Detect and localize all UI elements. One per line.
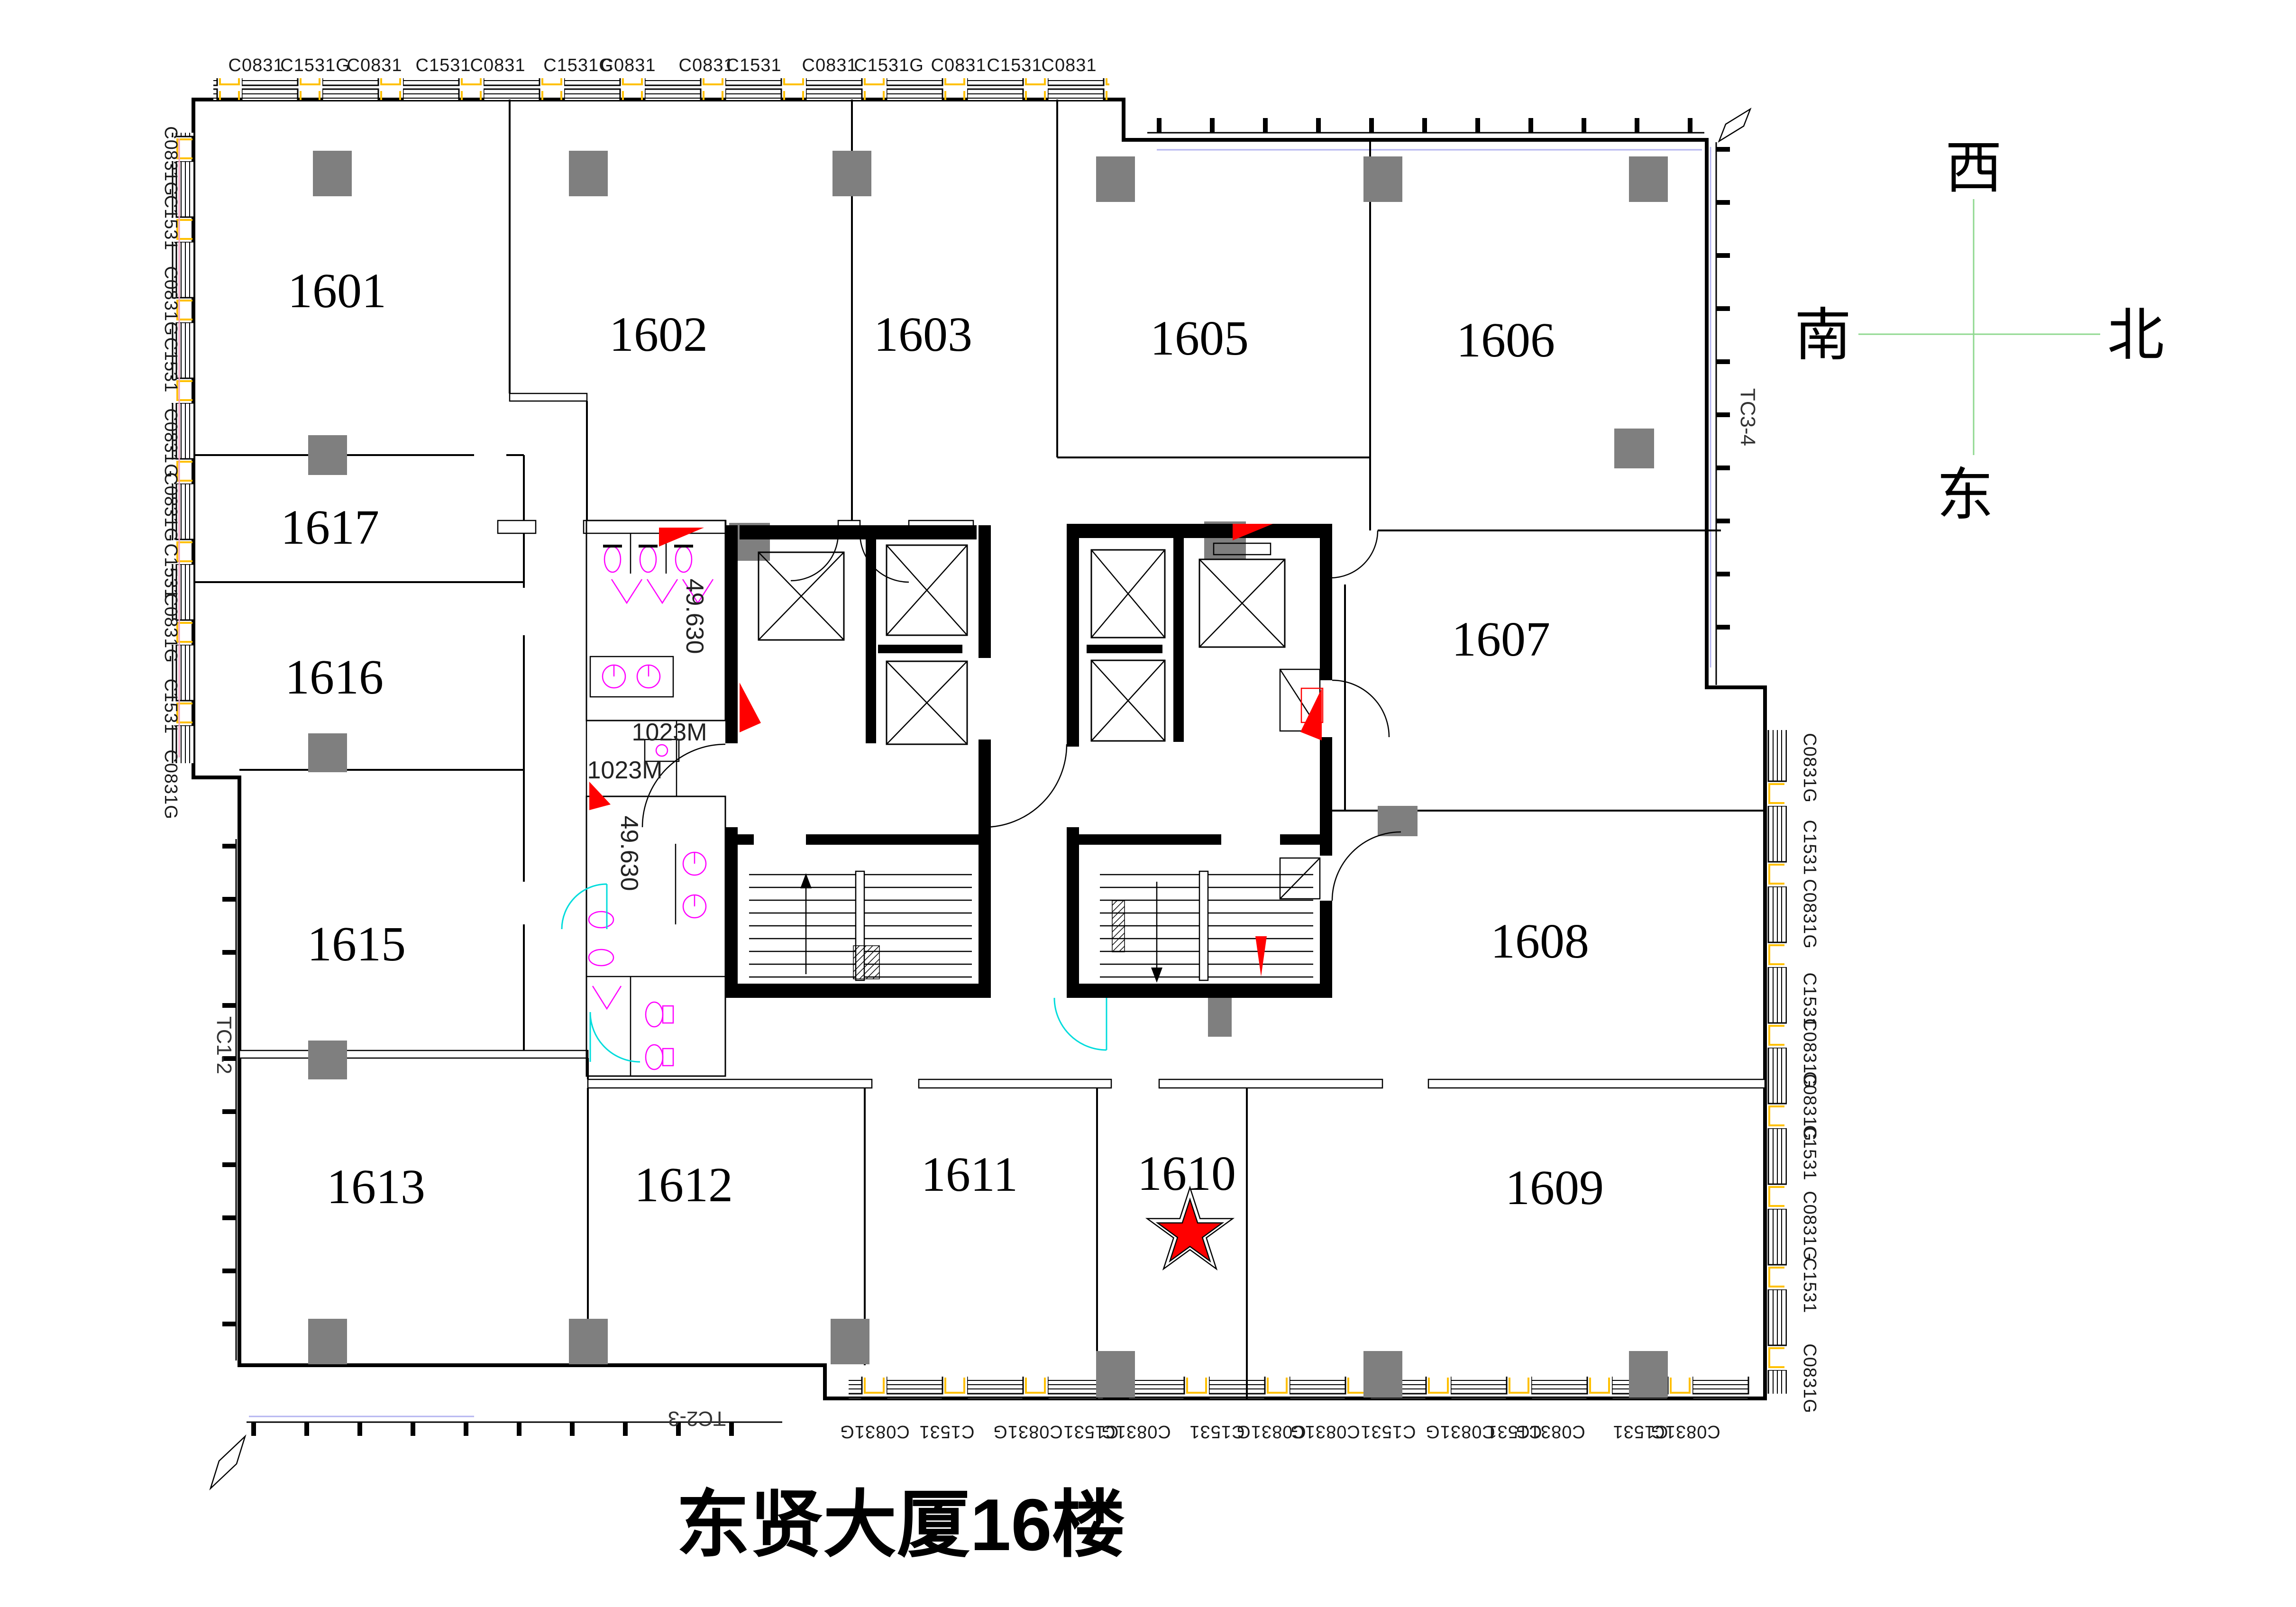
room-label-1608: 1608 [1491,914,1589,968]
window-labels-bottom: C0831G C1531 C0831G C1531 C0831G C1531 C… [840,1422,1720,1442]
room-label-1606: 1606 [1456,313,1555,367]
window-label: C0831 [347,55,402,75]
core-annotations: 49.630 49.630 1023M 1023M [587,578,709,891]
window-label: C1531 [726,55,782,75]
window-labels-right: C0831G C1531 C0831G C1531 C0831G C0831G … [1800,733,1820,1414]
compass-east: 东 [1937,464,1994,527]
elevator-cell [887,545,967,635]
elevator-cell [887,661,967,744]
window-band-bottom [849,1377,1749,1398]
window-label: C0831G [161,749,181,820]
window-label: C1531 [416,55,471,75]
railing-top-right [1147,125,1704,150]
window-label: C0831G [161,593,181,663]
window-label: C0831 [931,55,987,75]
floor-plan: 西 南 北 东 1601 1602 1603 1605 1606 1617 16… [0,0,2296,1607]
railing-left-bottom [229,839,236,1360]
window-label: C0831G [161,126,181,196]
tc-label-right: TC3-4 [1736,388,1759,446]
tc-label-bottom: TC2-3 [668,1407,726,1430]
window-label: C0831G [161,472,181,542]
compass: 西 南 北 东 [1794,137,2164,527]
room-label-1612: 1612 [634,1158,733,1212]
elevator-cell [1091,550,1165,638]
compass-south: 南 [1794,304,1851,367]
core-right [1067,524,1332,998]
elevator-cell [1091,660,1165,741]
window-label: C0831 [229,55,284,75]
room-label-1613: 1613 [327,1160,425,1214]
window-label: C1531G [280,55,350,75]
room-label-1605: 1605 [1150,311,1249,365]
tc-label-left: TC1-2 [212,1016,236,1074]
bathroom-upper [586,520,725,796]
window-label: C1531 [161,195,181,251]
room-label-1617: 1617 [281,500,379,555]
stair-right [1100,871,1313,983]
corner-flag-bottom-left [210,1436,245,1488]
room-label-1603: 1603 [874,307,972,362]
core-left [725,525,991,998]
compass-north: 北 [2107,304,2164,367]
room-label-1616: 1616 [285,650,384,704]
window-label: C0831G [840,1422,910,1442]
stair-left [749,871,972,980]
window-label: C0831G [1650,1422,1720,1442]
window-label: C1531 [1800,1125,1820,1181]
drawing-title: 东贤大厦16楼 [676,1484,1125,1566]
window-label: C0831G [1101,1422,1171,1442]
window-label: C1531 [161,544,181,599]
bathroom-lower [586,796,725,1076]
floorplan-page: 西 南 北 东 1601 1602 1603 1605 1606 1617 16… [0,0,2296,1607]
level-label-upper: 49.630 [681,578,708,654]
window-label: C1531 [987,55,1043,75]
door-label-upper: 1023M [632,719,707,746]
door-label-lower: 1023M [587,757,663,784]
window-labels-top: C0831 C1531G C0831 C1531 C0831 C1531G C0… [229,55,1097,75]
window-label: C0831G [1515,1422,1585,1442]
window-label: C1531 [161,338,181,393]
room-label-1611: 1611 [921,1147,1018,1202]
window-band-right [1765,730,1787,1394]
window-label: C1531 [1800,820,1820,876]
window-band-top [213,78,1109,100]
window-label: C1531 [919,1422,975,1442]
room-labels: 1601 1602 1603 1605 1606 1617 1616 1607 … [281,264,1604,1215]
room-label-1602: 1602 [609,307,708,362]
window-label: C0831G [1425,1422,1495,1442]
window-label: C0831 [802,55,858,75]
sink-counter [590,657,673,697]
window-label: C0831G [1800,1191,1820,1261]
window-label: C1531 [1800,1258,1820,1314]
room-label-1615: 1615 [307,917,406,971]
window-label: C0831 [470,55,526,75]
window-label: C1531 [161,679,181,734]
railing-right-top [1711,142,1723,685]
window-label: C0831G [1800,1343,1820,1414]
room-label-1610: 1610 [1137,1146,1236,1201]
window-labels-left: C0831G C1531 C0831G C1531 C0831G C0831G … [161,126,181,820]
service-rooms [1280,669,1320,899]
window-label: C1531G [854,55,924,75]
toilet-icons [646,1002,673,1069]
room-label-1609: 1609 [1505,1160,1604,1215]
window-label: C0831G [1800,733,1820,803]
corner-flag-top-right [1719,109,1750,141]
elevator-cell [1199,559,1285,647]
window-label: C0831 [1042,55,1097,75]
level-label-lower: 49.630 [615,815,643,891]
elevator-cell [759,552,844,640]
window-label: C0831G [161,408,181,478]
compass-west: 西 [1945,137,2002,200]
window-label: C0831G [1290,1422,1360,1442]
window-label: C0831 [601,55,656,75]
window-label: C0831G [161,266,181,336]
window-label: C0831G [993,1422,1063,1442]
window-label: C1531 [1361,1422,1416,1442]
room-label-1601: 1601 [288,264,386,318]
room-label-1607: 1607 [1452,612,1550,667]
window-label: C0831G [1800,879,1820,949]
